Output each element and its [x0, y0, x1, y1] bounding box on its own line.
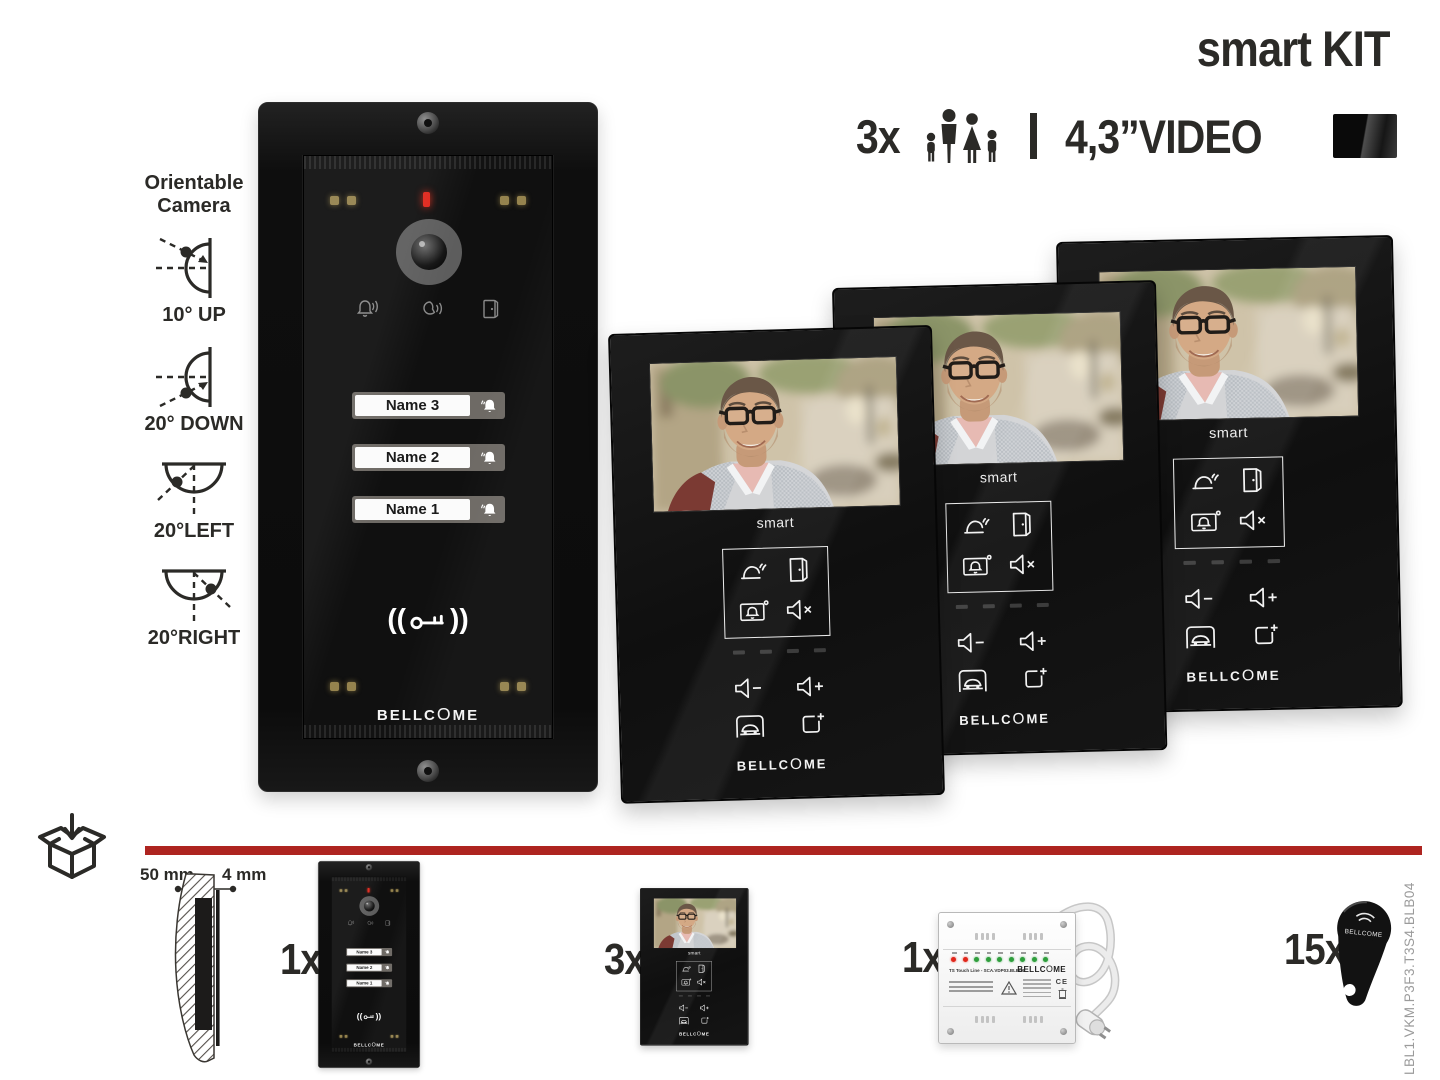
volume-down-icon: [953, 627, 990, 658]
screw: [417, 112, 439, 134]
camera-angle-down-icon: [152, 345, 236, 409]
call-button-row: Name 1: [346, 979, 392, 987]
orientable-camera-block: Orientable Camera 10° UP 20° DOWN 20°LEF…: [132, 172, 256, 650]
camera-angle-up-icon: [152, 236, 236, 300]
mute-icon: [785, 598, 814, 626]
angle-label: 20° DOWN: [144, 413, 243, 436]
capture-add-icon: [699, 1016, 711, 1026]
status-leds: [500, 682, 526, 691]
vent-slots: [1023, 1016, 1043, 1023]
ring-bell-icon: [347, 920, 354, 928]
led-labels: [952, 952, 1049, 954]
volume-up-icon: [793, 671, 830, 702]
capture-add-icon: [1246, 620, 1284, 651]
camera-angle-left-icon: [152, 454, 236, 516]
touch-key-panel: [722, 546, 830, 639]
model-label: smart: [641, 950, 748, 955]
front-plate: [216, 890, 220, 1046]
call-button-row: Name 3: [346, 948, 392, 956]
outdoor-door-panel: Name 3 Name 2 Name 1 (( )): [318, 861, 420, 1068]
gate-car-icon: [732, 711, 769, 742]
volume-down-icon: [678, 1003, 690, 1013]
vent-slots: [1023, 933, 1043, 940]
flush-box: [195, 898, 212, 1030]
ring-icon: [1190, 468, 1220, 498]
speak-icon: [417, 298, 443, 325]
call-button-row: Name 1: [352, 496, 505, 523]
door-exit-icon: [385, 920, 391, 928]
camera-lens: [396, 219, 462, 285]
angle-label: 20°RIGHT: [148, 627, 240, 650]
mute-icon: [697, 978, 706, 987]
visitor-portrait: [650, 357, 900, 512]
speak-icon: [366, 920, 374, 928]
status-leds: [391, 889, 399, 892]
nameplate: Name 2: [347, 965, 382, 971]
indoor-video-monitor: smart: [640, 888, 749, 1045]
status-leds: [340, 889, 348, 892]
touch-key-panel: [676, 961, 712, 991]
door-open-icon: [788, 556, 809, 588]
wall-mount-diagram: 50 mm 4 mm: [138, 862, 266, 1064]
camera-view-icon: [1190, 508, 1222, 538]
volume-up-icon: [1015, 626, 1052, 657]
screw: [417, 760, 439, 782]
label-code: LBL1.VKM.P3F3.T3S4.BLB04: [1402, 890, 1417, 1075]
camera-view-icon: [962, 553, 993, 583]
gate-car-icon: [1182, 622, 1220, 653]
camera-view-icon: [738, 598, 769, 628]
angle-label: 20°LEFT: [154, 520, 234, 543]
brand-logo: BELLCOME: [332, 1042, 406, 1048]
volume-up-icon: [1245, 582, 1283, 613]
camera-lens: [359, 896, 379, 916]
door-open-icon: [1012, 511, 1033, 542]
camera-view-icon: [681, 978, 691, 988]
kit-spec-row: 3x 4,3”VIDEO: [856, 106, 1397, 166]
page-title: smart KIT: [1168, 24, 1390, 74]
call-button-row: Name 2: [352, 444, 505, 471]
warning-triangle-icon: [1001, 981, 1017, 995]
ring-icon: [738, 558, 767, 588]
model-label: smart: [615, 510, 935, 535]
orientable-camera-heading: Orientable Camera: [145, 172, 244, 218]
monitor-screen: [649, 356, 901, 513]
status-leds: [330, 196, 356, 205]
vent-slots: [975, 933, 995, 940]
separator-bar: [1030, 113, 1037, 159]
monitors-qty: 3x: [856, 113, 906, 160]
screw: [366, 864, 373, 871]
nameplate: Name 3: [347, 949, 382, 955]
brand-logo: BELLCOME: [622, 752, 942, 779]
product-sheet: smart KIT 3x 4,3”VIDEO Orientable Camera…: [0, 0, 1440, 1080]
nameplate: Name 1: [355, 499, 470, 520]
door-open-icon: [1242, 466, 1263, 498]
section-divider: [145, 846, 1422, 855]
call-bell-icon: [475, 395, 502, 416]
gate-car-icon: [678, 1016, 690, 1026]
status-leds: [340, 1035, 348, 1038]
psu-model-label: TS Touch Line - SCA.VDP03.BLB04: [949, 968, 1024, 973]
visitor-portrait: [654, 898, 736, 948]
ring-bell-icon: [356, 298, 380, 325]
nameplate: Name 2: [355, 447, 470, 468]
angle-label: 10° UP: [162, 304, 226, 327]
texture-band: [304, 725, 552, 738]
nameplate: Name 1: [347, 980, 382, 986]
video-size-label: 4,3”VIDEO: [1065, 113, 1291, 160]
mute-icon: [1238, 508, 1268, 536]
spec-text: [949, 981, 993, 995]
status-leds: [500, 196, 526, 205]
vent-slots: [975, 1016, 995, 1023]
door-exit-icon: [480, 298, 500, 325]
mute-icon: [1009, 553, 1038, 581]
touch-key-panel: [1173, 456, 1285, 549]
brand-logo: BELLCOME: [641, 1031, 748, 1037]
ce-mark: CE: [1056, 977, 1068, 986]
call-button-row: Name 2: [346, 964, 392, 972]
ring-icon: [962, 513, 991, 543]
texture-band: [304, 156, 552, 169]
volume-up-icon: [699, 1003, 711, 1013]
call-button-row: Name 3: [352, 392, 505, 419]
recording-led: [368, 888, 370, 893]
power-supply-unit: TS Touch Line - SCA.VDP03.BLB04 BELLCOME…: [938, 912, 1076, 1044]
door-panel-faceplate: Name 3 Name 2 Name 1 (( )): [332, 877, 407, 1052]
texture-band: [332, 1048, 406, 1052]
indoor-video-monitor: smart: [608, 325, 945, 804]
touch-key-panel: [945, 501, 1053, 594]
monitor-screen: [653, 898, 736, 948]
brand-logo: BELLCOME: [1017, 964, 1066, 974]
family-silhouettes-icon: [924, 107, 1002, 165]
capture-add-icon: [1016, 664, 1053, 695]
rfid-key-icon: (( )): [304, 608, 552, 636]
call-bell-icon: [475, 499, 502, 520]
status-leds: [330, 682, 356, 691]
call-bell-icon: [475, 447, 502, 468]
outdoor-door-panel: Name 3 Name 2 Name 1 (( )): [258, 102, 598, 792]
rfid-key-icon: (( )): [332, 1013, 406, 1021]
volume-down-icon: [731, 673, 768, 704]
volume-down-icon: [1181, 583, 1219, 614]
ring-icon: [682, 965, 691, 975]
plate-depth-label: 4 mm: [222, 865, 266, 884]
package-box-icon: [35, 810, 109, 884]
camera-angle-right-icon: [152, 561, 236, 623]
display-icon: [1333, 114, 1397, 158]
rfid-key-fob: BELLCOME: [1322, 898, 1400, 1020]
door-open-icon: [698, 964, 705, 974]
led-indicators: [641, 995, 748, 996]
texture-band: [332, 877, 406, 881]
gate-car-icon: [954, 665, 991, 696]
call-bell-icon: [383, 980, 391, 986]
status-leds: [391, 1035, 399, 1038]
door-panel-faceplate: Name 3 Name 2 Name 1 (( )): [303, 155, 553, 739]
led-indicators: [619, 645, 939, 658]
nameplate: Name 3: [355, 395, 470, 416]
notice-text: [1023, 979, 1051, 1000]
recording-led: [423, 192, 430, 207]
capture-add-icon: [794, 709, 831, 740]
screw: [366, 1058, 373, 1065]
brand-logo: BELLCOME: [304, 704, 552, 725]
status-led-row: [951, 957, 1048, 962]
call-bell-icon: [383, 949, 391, 955]
weee-bin-icon: [1058, 988, 1067, 999]
call-bell-icon: [383, 965, 391, 971]
